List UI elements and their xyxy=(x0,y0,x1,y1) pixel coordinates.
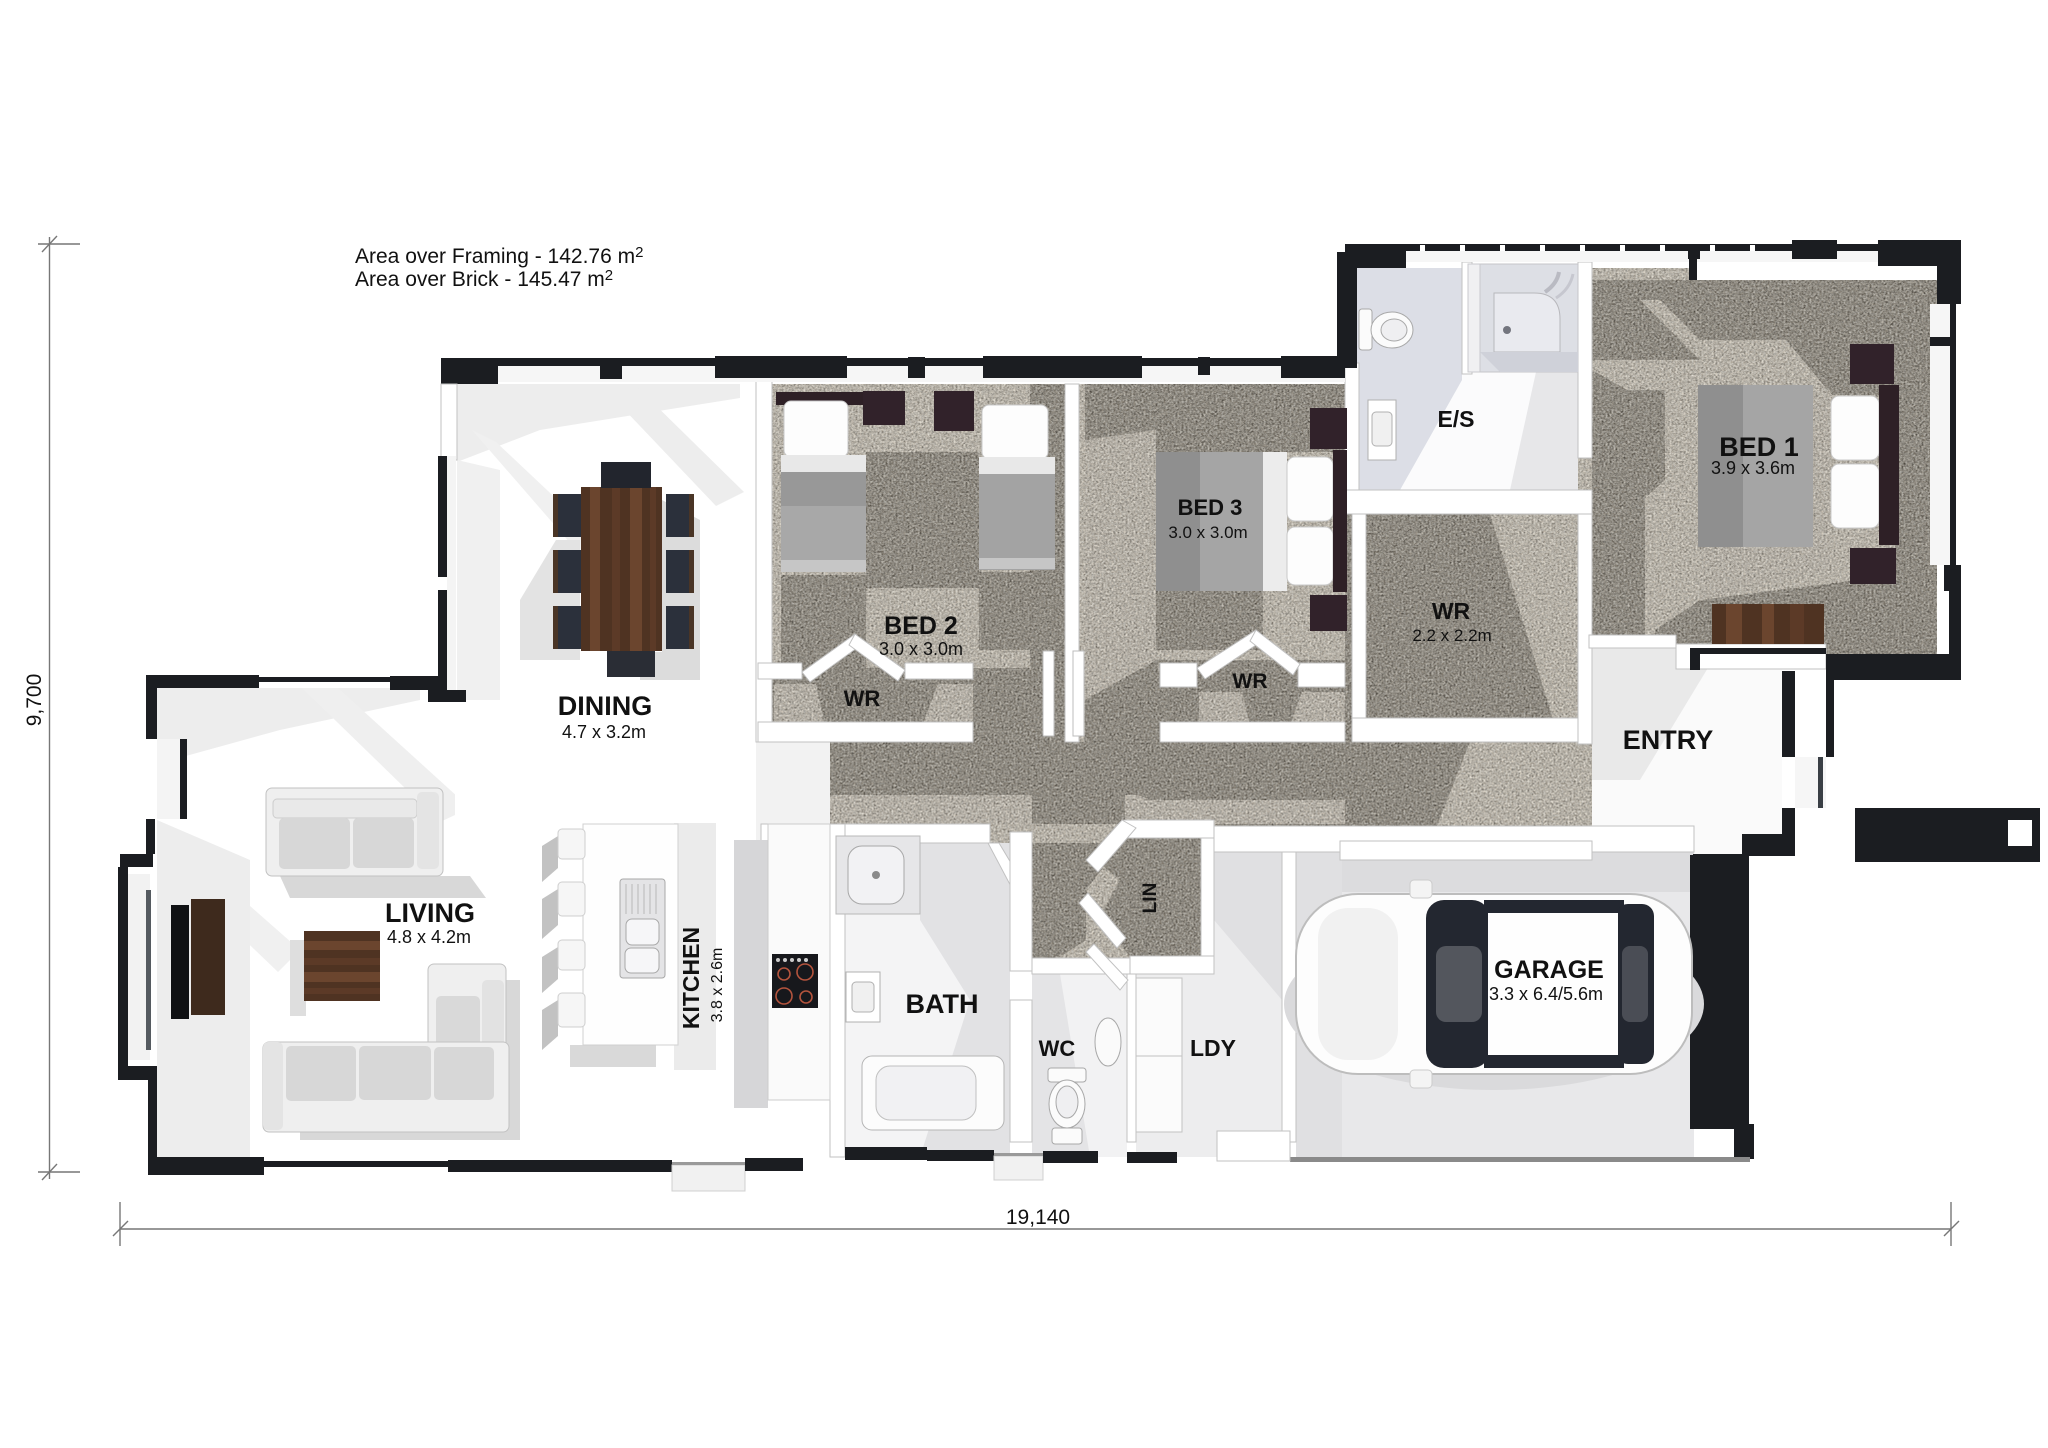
svg-text:19,140: 19,140 xyxy=(1006,1206,1070,1229)
svg-text:3.3 x 6.4/5.6m: 3.3 x 6.4/5.6m xyxy=(1489,984,1603,1004)
svg-text:DINING: DINING xyxy=(558,691,653,721)
svg-text:BED 3: BED 3 xyxy=(1178,495,1243,520)
svg-text:3.0 x 3.0m: 3.0 x 3.0m xyxy=(879,639,963,659)
svg-text:3.8 x 2.6m: 3.8 x 2.6m xyxy=(709,948,726,1023)
svg-text:Area over Framing - 142.76 m2: Area over Framing - 142.76 m2 xyxy=(355,244,643,268)
svg-text:LDY: LDY xyxy=(1190,1035,1236,1061)
svg-text:ENTRY: ENTRY xyxy=(1623,725,1714,755)
svg-text:WC: WC xyxy=(1039,1036,1076,1061)
svg-text:BATH: BATH xyxy=(906,989,979,1019)
svg-text:3.9 x 3.6m: 3.9 x 3.6m xyxy=(1711,458,1795,478)
svg-text:4.8 x 4.2m: 4.8 x 4.2m xyxy=(387,927,471,947)
svg-text:BED 2: BED 2 xyxy=(884,612,958,640)
svg-text:GARAGE: GARAGE xyxy=(1494,956,1604,984)
svg-text:Area over Brick - 145.47 m2: Area over Brick - 145.47 m2 xyxy=(355,267,613,291)
svg-text:4.7 x 3.2m: 4.7 x 3.2m xyxy=(562,722,646,742)
svg-text:2.2 x 2.2m: 2.2 x 2.2m xyxy=(1412,626,1491,645)
svg-text:WR: WR xyxy=(1432,598,1471,624)
svg-text:WR: WR xyxy=(1233,670,1268,693)
svg-text:KITCHEN: KITCHEN xyxy=(678,927,704,1029)
svg-text:E/S: E/S xyxy=(1437,406,1474,432)
svg-text:3.0 x 3.0m: 3.0 x 3.0m xyxy=(1168,523,1247,542)
svg-text:WR: WR xyxy=(844,686,881,711)
svg-text:LIVING: LIVING xyxy=(385,898,475,928)
svg-text:LIN: LIN xyxy=(1140,883,1161,914)
svg-text:9,700: 9,700 xyxy=(23,674,46,727)
